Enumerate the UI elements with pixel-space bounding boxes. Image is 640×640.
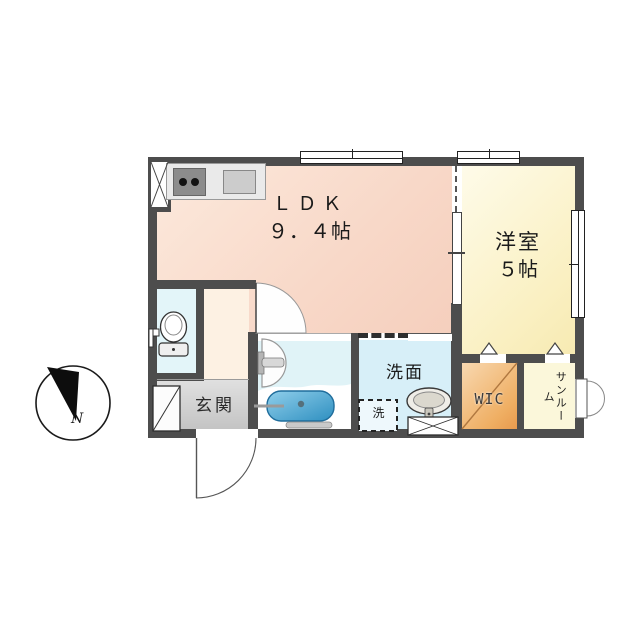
north-arrow-icon [36,366,110,440]
sunroom-label: サンルーム [542,366,566,428]
wic-label: WIC [462,391,517,408]
basin-cabinet-x-icon [408,417,458,435]
bedroom-label: 洋室 [468,231,568,254]
washroom-label: 洗面 [358,364,452,383]
bedroom-size-label: ５帖 [468,259,568,281]
ldk-door-arc [256,283,306,333]
washbasin-icon [407,388,451,418]
toilet-icon [149,312,188,356]
washer-space-label: 洗 [360,407,397,420]
sunroom-door-triangle [547,343,563,354]
plan-symbols [0,0,640,640]
bathtub-icon [254,384,351,429]
entrance-door-arc [196,438,256,498]
ldk-size-label: ９．４帖 [240,221,380,243]
entrance-label: 玄関 [170,397,260,416]
ldk-label: ＬＤＫ [240,195,380,216]
shaft-x-icon [151,162,168,207]
wic-door-triangle [481,343,497,354]
sunroom-exterior-door [576,379,605,418]
floor-plan-canvas: ＬＤＫ ９．４帖 洋室 ５帖 洗面 洗 WIC サンルーム 玄関 N [0,0,640,640]
compass-north-label: N [71,412,83,427]
